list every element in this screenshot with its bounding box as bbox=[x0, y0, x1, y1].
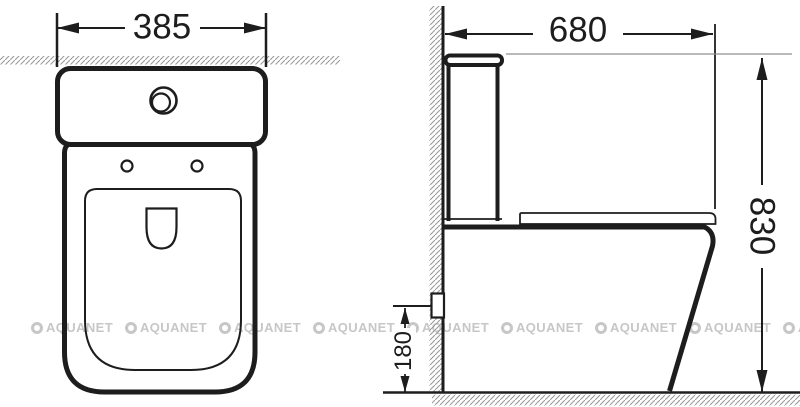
tank-lid-side bbox=[446, 56, 503, 66]
seat-side-outline bbox=[520, 213, 716, 224]
dim-label-depth: 680 bbox=[546, 13, 610, 48]
wall-hatch-front bbox=[0, 56, 340, 65]
arrow-left-icon bbox=[445, 29, 467, 40]
arrow-up-icon bbox=[401, 308, 410, 324]
dim-label-width: 385 bbox=[130, 10, 194, 45]
outlet-box bbox=[432, 294, 445, 318]
water-outlet-shape bbox=[147, 209, 177, 249]
technical-drawing-page: AQUANET AQUANET AQUANET AQUANET AQUANET … bbox=[0, 0, 800, 407]
hinge-hole-left bbox=[122, 161, 133, 172]
arrow-down-icon bbox=[401, 376, 410, 392]
tank-outline bbox=[58, 69, 266, 145]
arrow-down-icon bbox=[757, 370, 768, 392]
arrow-right-icon bbox=[244, 23, 266, 34]
arrow-left-icon bbox=[57, 23, 79, 34]
dim-label-height: 830 bbox=[745, 194, 780, 258]
wall-hatch-side bbox=[430, 6, 444, 392]
bowl-front-curve bbox=[670, 226, 714, 391]
tank-side-walls bbox=[449, 65, 498, 221]
seat-outline bbox=[85, 189, 241, 370]
bowl-body-outline bbox=[65, 143, 256, 392]
front-view bbox=[0, 56, 340, 392]
dim-680 bbox=[445, 24, 715, 209]
dim-label-outlet-height: 180 bbox=[392, 328, 416, 374]
arrow-right-icon bbox=[691, 29, 713, 40]
floor-hatch bbox=[432, 395, 800, 406]
side-view bbox=[383, 6, 800, 406]
arrow-up-icon bbox=[757, 58, 768, 80]
hinge-hole-right bbox=[192, 161, 203, 172]
